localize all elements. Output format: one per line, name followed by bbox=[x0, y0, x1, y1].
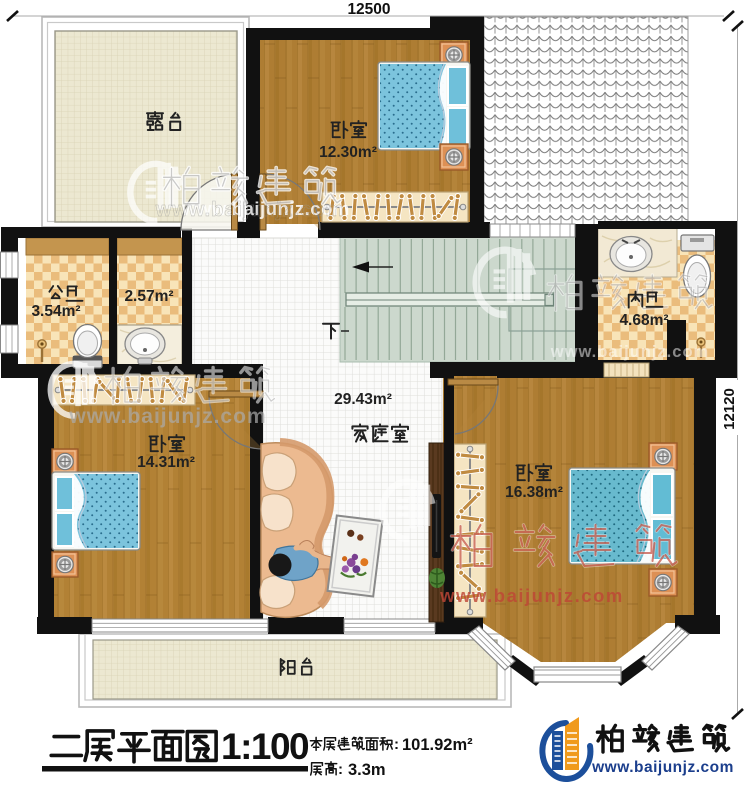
svg-text:12120: 12120 bbox=[721, 388, 738, 430]
svg-text:3.3m: 3.3m bbox=[348, 761, 386, 779]
svg-text::: : bbox=[338, 761, 343, 778]
svg-text::: : bbox=[394, 736, 399, 753]
svg-text:www.baijunjz.com: www.baijunjz.com bbox=[550, 343, 709, 361]
svg-text:www.baijunjz.com: www.baijunjz.com bbox=[68, 405, 266, 428]
svg-text:www.baijunjz.com: www.baijunjz.com bbox=[591, 759, 734, 776]
svg-text:101.92m²: 101.92m² bbox=[402, 736, 473, 754]
svg-text:14.31m²: 14.31m² bbox=[137, 454, 195, 471]
svg-text:www.baijunjz.com: www.baijunjz.com bbox=[155, 199, 345, 221]
svg-text:3.54m²: 3.54m² bbox=[31, 303, 80, 320]
svg-text:12500: 12500 bbox=[347, 1, 390, 18]
svg-text:2.57m²: 2.57m² bbox=[124, 288, 173, 305]
svg-text:16.38m²: 16.38m² bbox=[505, 484, 563, 501]
svg-text:www.baijunjz.com: www.baijunjz.com bbox=[439, 585, 624, 606]
svg-text:12.30m²: 12.30m² bbox=[319, 144, 377, 161]
svg-text:29.43m²: 29.43m² bbox=[334, 391, 392, 408]
svg-text:1:100: 1:100 bbox=[221, 726, 309, 767]
svg-text:4.68m²: 4.68m² bbox=[619, 312, 668, 329]
